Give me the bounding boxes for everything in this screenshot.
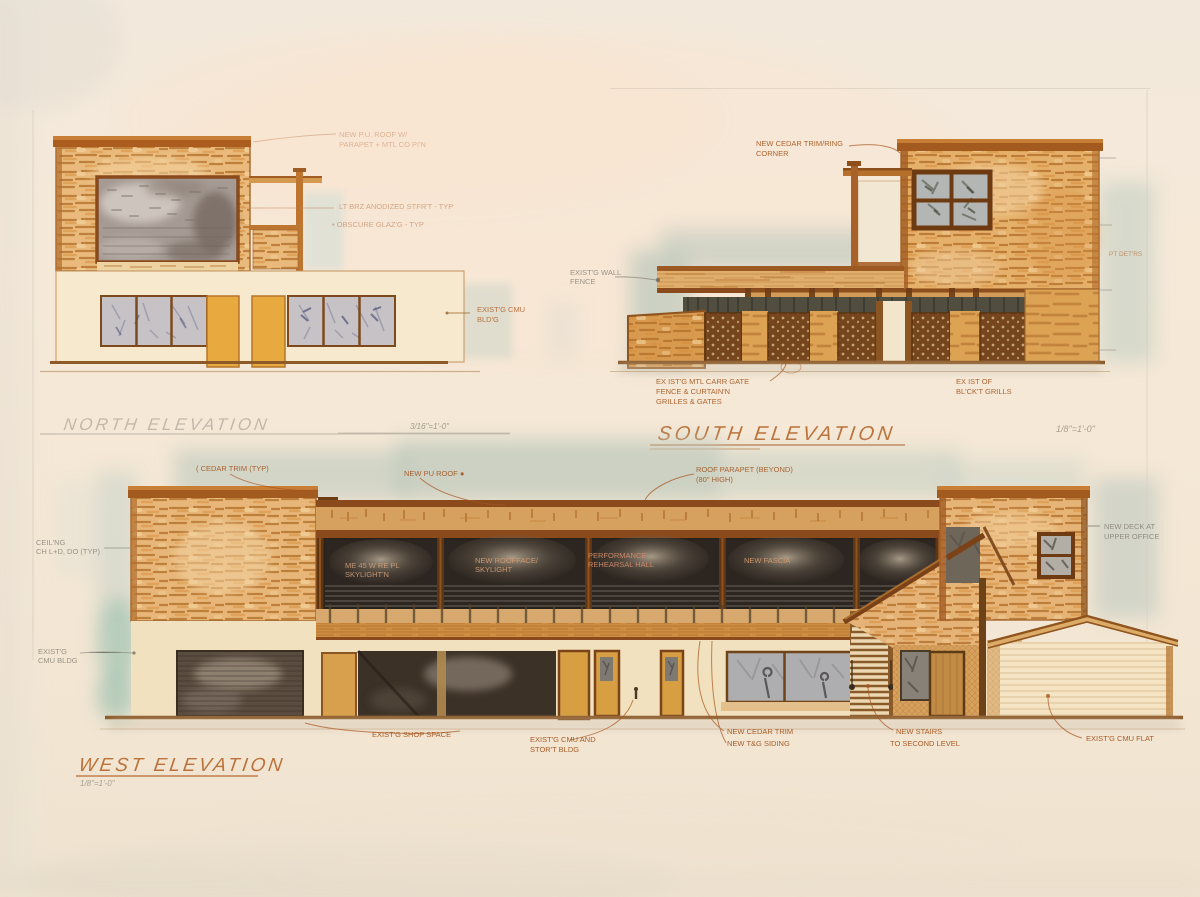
svg-text:NORTH ELEVATION: NORTH ELEVATION xyxy=(62,415,271,434)
svg-text:PERFORMANCE: PERFORMANCE xyxy=(588,551,646,560)
svg-text:NEW T&G SIDING: NEW T&G SIDING xyxy=(727,739,790,748)
svg-text:NEW STAIRS: NEW STAIRS xyxy=(896,727,942,736)
svg-text:NEW PU ROOF ●: NEW PU ROOF ● xyxy=(404,469,464,478)
svg-text:( CEDAR TRIM (TYP): ( CEDAR TRIM (TYP) xyxy=(196,464,269,473)
svg-text:UPPER OFFICE: UPPER OFFICE xyxy=(1104,532,1159,541)
svg-text:EXIST'G CMU FLAT: EXIST'G CMU FLAT xyxy=(1086,734,1154,743)
svg-text:EXIST'G CMU: EXIST'G CMU xyxy=(477,305,525,314)
svg-text:FENCE & CURTAIN'N: FENCE & CURTAIN'N xyxy=(656,387,730,396)
svg-text:SKYLIGHT: SKYLIGHT xyxy=(475,565,513,574)
svg-text:CORNER: CORNER xyxy=(756,149,789,158)
svg-text:EXIST'G SHOP SPACE: EXIST'G SHOP SPACE xyxy=(372,730,451,739)
svg-text:NEW P.U. ROOF W/: NEW P.U. ROOF W/ xyxy=(339,130,408,139)
svg-text:STOR'T BLDG: STOR'T BLDG xyxy=(530,745,579,754)
svg-text:PT DET'RS: PT DET'RS xyxy=(1109,251,1143,258)
svg-text:NEW CEDAR TRIM/RING: NEW CEDAR TRIM/RING xyxy=(756,139,843,148)
svg-text:TO SECOND LEVEL: TO SECOND LEVEL xyxy=(890,739,960,748)
svg-text:1/8"=1'-0": 1/8"=1'-0" xyxy=(1056,424,1096,434)
svg-text:EX IST OF: EX IST OF xyxy=(956,377,993,386)
svg-text:GRILLES & GATES: GRILLES & GATES xyxy=(656,397,722,406)
svg-text:REHEARSAL HALL: REHEARSAL HALL xyxy=(588,560,654,569)
svg-text:EXIST'G: EXIST'G xyxy=(38,647,67,656)
svg-text:CH L+D, DO (TYP): CH L+D, DO (TYP) xyxy=(36,547,100,556)
svg-text:3/16"=1'-0": 3/16"=1'-0" xyxy=(410,422,450,431)
svg-text:NEW DECK AT: NEW DECK AT xyxy=(1104,522,1156,531)
svg-text:FENCE: FENCE xyxy=(570,277,595,286)
svg-text:ME 45 W RE PL: ME 45 W RE PL xyxy=(345,561,400,570)
svg-text:LT BRZ ANODIZED STFR'T - TYP: LT BRZ ANODIZED STFR'T - TYP xyxy=(339,202,453,211)
svg-text:(80" HIGH): (80" HIGH) xyxy=(696,475,733,484)
svg-text:CEIL'NG: CEIL'NG xyxy=(36,538,66,547)
svg-text:SKYLIGHT'N: SKYLIGHT'N xyxy=(345,570,389,579)
svg-text:WEST ELEVATION: WEST ELEVATION xyxy=(77,755,286,776)
svg-text:NEW FASCIA: NEW FASCIA xyxy=(744,556,790,565)
svg-text:EX IST'G MTL CARR GATE: EX IST'G MTL CARR GATE xyxy=(656,377,749,386)
svg-text:NEW ROOFFACE/: NEW ROOFFACE/ xyxy=(475,556,539,565)
svg-text:NEW CEDAR TRIM: NEW CEDAR TRIM xyxy=(727,727,793,736)
svg-text:BL'CK'T GRILLS: BL'CK'T GRILLS xyxy=(956,387,1012,396)
svg-text:1/8"=1'-0": 1/8"=1'-0" xyxy=(80,779,116,788)
svg-text:PARAPET + MTL CO PI'N: PARAPET + MTL CO PI'N xyxy=(339,140,426,149)
svg-text:• OBSCURE GLAZ'G - TYP: • OBSCURE GLAZ'G - TYP xyxy=(332,220,424,229)
svg-text:BLD'G: BLD'G xyxy=(477,315,499,324)
svg-text:ROOF PARAPET (BEYOND): ROOF PARAPET (BEYOND) xyxy=(696,465,793,474)
svg-text:EXIST'G WALL: EXIST'G WALL xyxy=(570,268,621,277)
svg-text:CMU BLDG: CMU BLDG xyxy=(38,656,78,665)
